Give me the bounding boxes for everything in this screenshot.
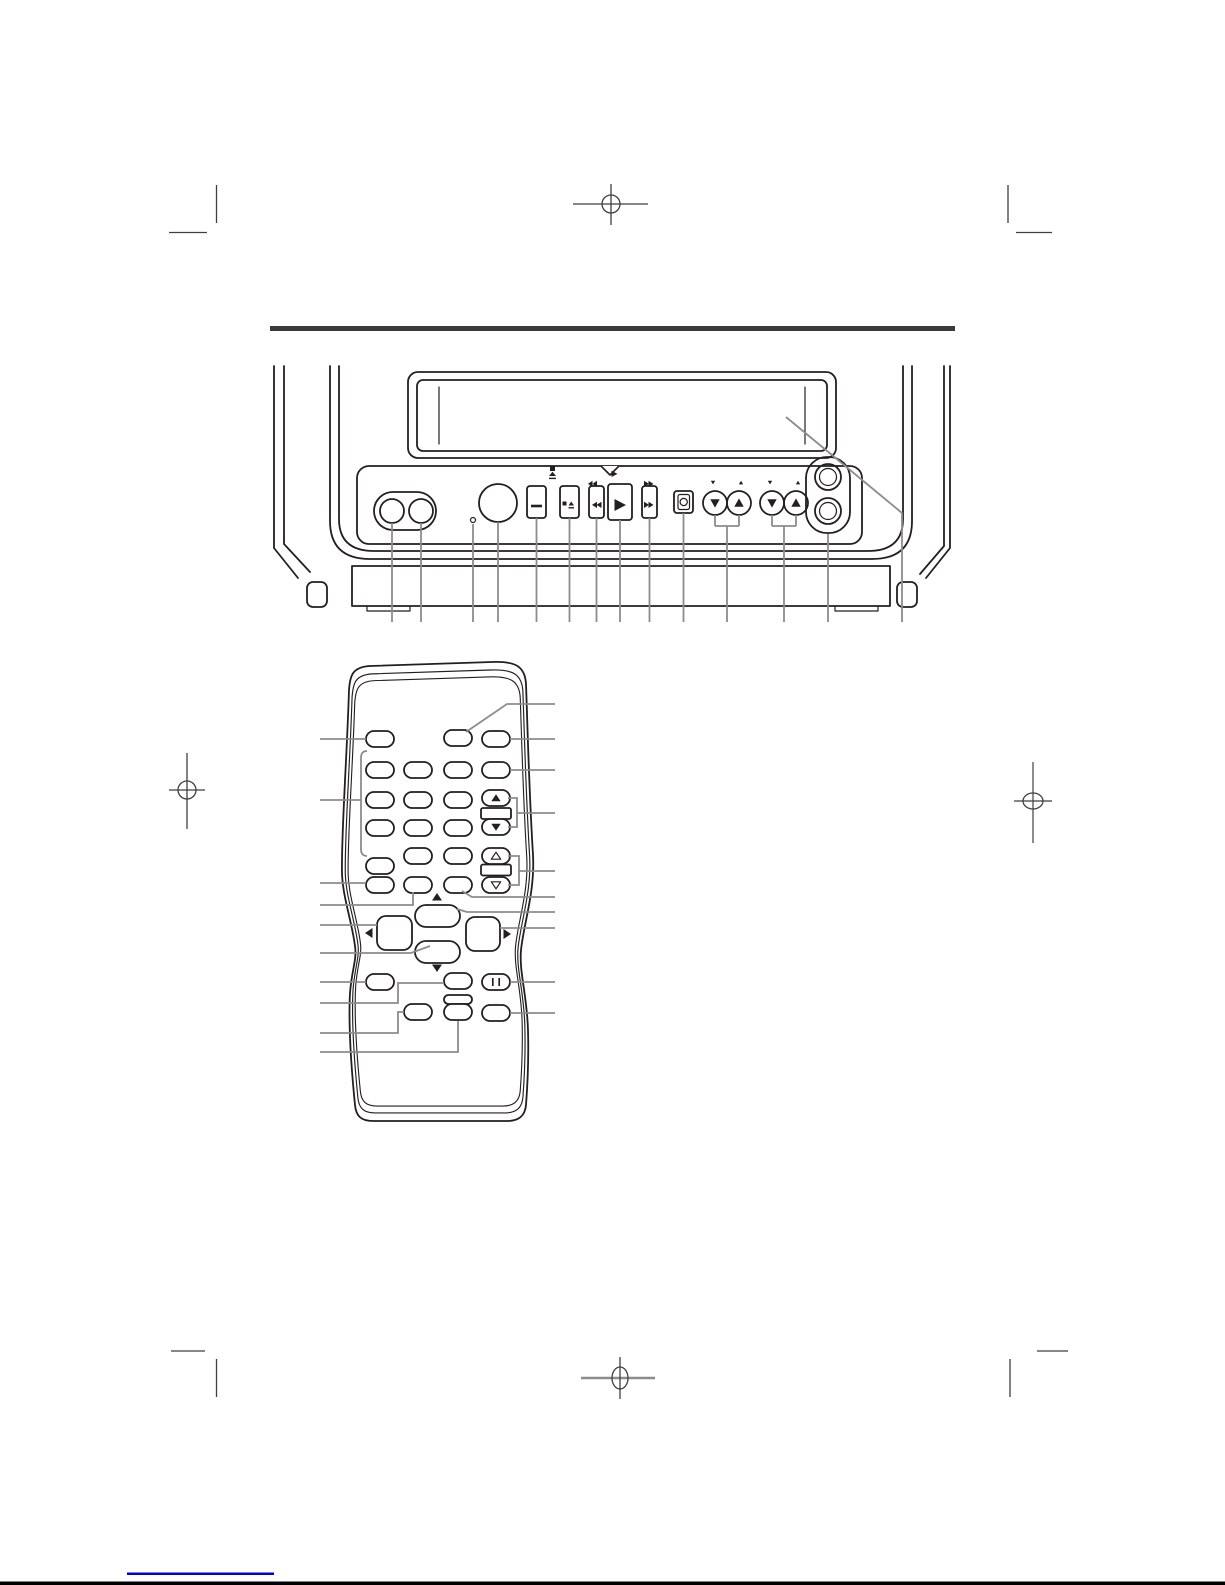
lower-button [404,1004,432,1020]
keypad-button [444,877,472,893]
dpad-right-icon [504,929,512,939]
channel-rocker-bracket [508,856,555,885]
volume-up-label-icon [796,481,800,485]
page-bottom-bar [0,1582,1225,1585]
base-slab [352,566,890,606]
stop-eject-button [560,486,579,518]
slim-button [444,995,472,1004]
lower-button [444,973,472,989]
volume-down-button [760,491,784,515]
dpad-down-icon [432,965,442,973]
remote-top-left-button [366,731,394,747]
keypad-button [366,762,394,778]
pause-button [482,974,510,990]
keypad-button [444,762,472,778]
play-button [608,484,632,520]
keypad-button [366,877,394,893]
callout-line [320,1021,458,1052]
keypad-button [366,792,394,808]
callout-line [320,1012,404,1033]
channel-up-button [727,491,751,515]
crop-mark-top-right [1008,185,1052,233]
keypad-button [404,820,432,836]
keypad-button [482,762,510,778]
knob-housing [806,457,850,533]
volume-up-icon [791,498,800,506]
callout-line-cassette [786,417,902,622]
keypad-button [404,792,432,808]
register-mark-left-middle [169,753,205,829]
av-jack-left [380,499,404,523]
callout-line [466,704,555,732]
dpad-left-icon [365,928,373,938]
volume-rocker [481,790,511,835]
callout-line [320,892,413,905]
stop-label-icon [550,466,555,471]
base-foot-right [897,582,917,607]
tv-vcr-front-panel-diagram [274,366,950,622]
cabinet-left-inner-edge [284,366,310,572]
dpad-left-button [377,916,412,950]
channel-down-button [703,491,727,515]
dpad-down-button [415,941,460,963]
volume-up-button [784,491,808,515]
volume-rocker-center [481,808,511,819]
cassette-door-inner [417,380,827,451]
channel-down-label-icon [711,481,715,485]
dpad-right-button [466,917,500,951]
stop-eject-label [549,466,556,478]
remote-lower-buttons [366,973,510,1021]
keypad-button [366,858,394,874]
manual-page [0,0,1225,1585]
fast-forward-button [642,486,657,518]
crop-mark-top-left [169,185,217,233]
crop-mark-bottom-right [1010,1351,1068,1397]
callout-line [320,946,430,953]
lower-button [482,1005,510,1021]
keypad-button [404,848,432,864]
dpad-up-icon [432,893,442,901]
tv-base [307,566,917,611]
channel-rocker-center [481,865,511,876]
stop-icon [563,502,567,506]
section-divider-rule [270,326,955,331]
sensor-dot [471,518,476,523]
av-jack-right [409,499,433,523]
av-jack-housing [374,492,436,530]
callout-line [457,909,555,912]
cassette-door [408,372,836,458]
lower-button [366,974,394,990]
keypad-button [444,848,472,864]
remote-top-right-button [482,731,510,747]
registration-marks [169,184,1068,1399]
footer-link-underline[interactable] [127,1573,274,1576]
channel-down-icon [710,499,719,507]
power-button [479,484,517,522]
register-mark-top-center [573,184,648,225]
channel-rocker [481,848,511,893]
remote-control-diagram [320,662,555,1121]
keypad-button [404,877,432,893]
keypad-button [444,820,472,836]
volume-down-icon [767,499,776,507]
record-button [674,491,693,513]
bar-button [527,486,546,518]
eject-label-icon [549,472,556,476]
callout-line [462,891,555,897]
front-control-panel [357,457,862,544]
channel-up-icon [734,498,743,506]
channel-up-button [482,848,510,864]
cabinet-right-inner-edge [920,366,944,574]
rewind-button [589,486,604,518]
keypad-button [404,762,432,778]
register-mark-bottom-center [581,1357,655,1399]
register-mark-right-middle [1014,762,1052,843]
base-foot-left [307,582,327,607]
play-label-icon [612,471,618,477]
volume-down-label-icon [768,481,772,485]
keypad-button [366,820,394,836]
lower-button [444,1004,472,1020]
cassette-door-outer [408,372,836,458]
channel-down-button [482,877,510,893]
remote-top-middle-button [444,730,472,746]
crop-mark-bottom-left [171,1351,217,1397]
page-artwork [0,0,1225,1585]
dpad-up-button [415,905,460,927]
channel-up-label-icon [739,481,743,485]
keypad-button [444,792,472,808]
cabinet-right-outer-edge [926,366,950,578]
